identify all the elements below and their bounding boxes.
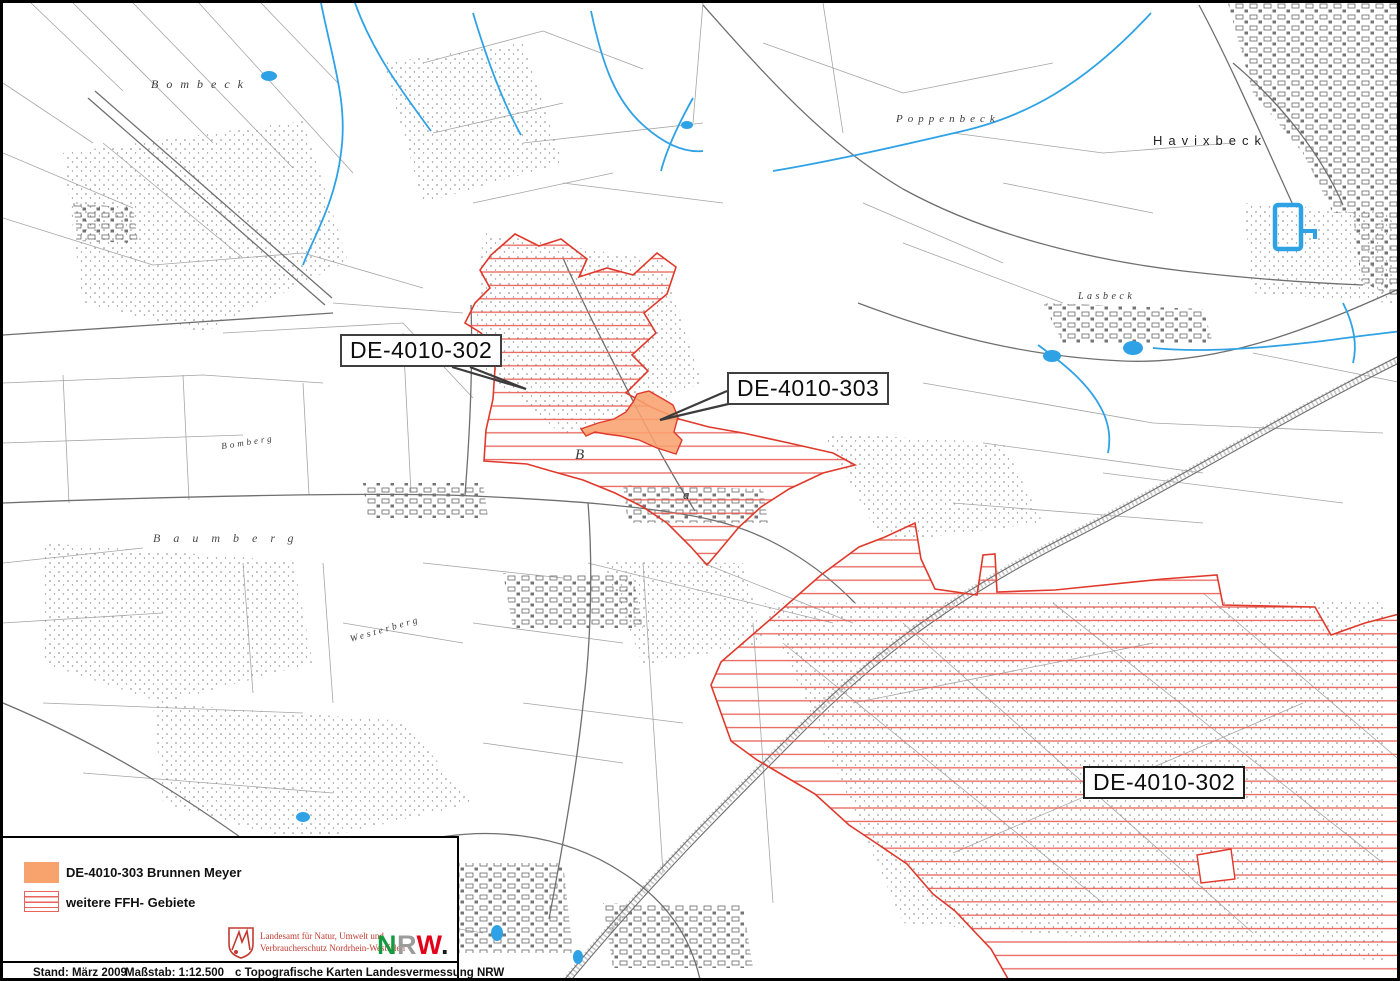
nrw-letter-r: R (397, 930, 417, 960)
nrw-dot: . (441, 930, 449, 960)
legend-swatch-brunnen-meyer (24, 862, 59, 883)
place-label-baumberg: Baumberg (153, 531, 307, 546)
footer-stand-date: Stand: März 2009 (33, 967, 127, 979)
place-label-havixbeck: Havixbeck (1153, 133, 1267, 148)
topographic-basemap (3, 3, 1400, 981)
place-label-lasbeck: Lasbeck (1078, 291, 1135, 302)
legend-label-brunnen-meyer: DE-4010-303 Brunnen Meyer (66, 865, 242, 880)
place-letter-a: a (683, 487, 690, 503)
legend-label-ffh-gebiete: weitere FFH- Gebiete (66, 895, 195, 910)
place-letter-b: B (575, 447, 584, 464)
callout-de-4010-303: DE-4010-303 (727, 372, 889, 405)
map-document: DE-4010-302 DE-4010-303 DE-4010-302 Bomb… (0, 0, 1400, 981)
nrw-logo: NRW. (377, 933, 449, 957)
place-label-poppenbeck: Poppenbeck (896, 113, 1000, 125)
callout-de-4010-302-southeast: DE-4010-302 (1083, 766, 1245, 799)
place-label-bombeck: Bombeck (151, 77, 251, 92)
legend: DE-4010-303 Brunnen Meyer weitere FFH- G… (3, 836, 459, 981)
nrw-letter-w: W (417, 930, 442, 960)
legend-footer-divider (3, 961, 459, 963)
ffh-area-enclave (1197, 849, 1235, 883)
nrw-letter-n: N (377, 930, 397, 960)
lanuv-crest-icon (227, 926, 255, 960)
footer-copyright: c Topografische Karten Landesvermessung … (235, 967, 504, 979)
callout-de-4010-302-north: DE-4010-302 (340, 334, 502, 367)
footer-scale: Maßstab: 1:12.500 (125, 967, 224, 979)
ffh-area-southeast (711, 523, 1400, 981)
legend-swatch-ffh-gebiete (24, 891, 59, 912)
